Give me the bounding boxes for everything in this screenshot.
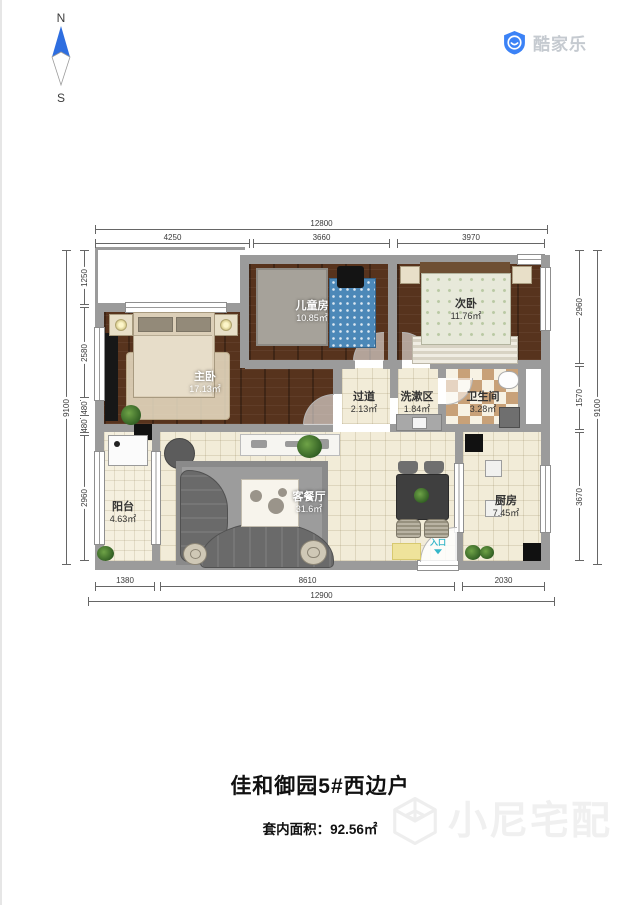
dim-top-overall: 12800 bbox=[95, 229, 548, 230]
dining-chair-4 bbox=[424, 519, 449, 538]
dim-right-overall: 9100 bbox=[597, 250, 598, 565]
window-kitchen-right bbox=[541, 466, 550, 532]
kujiale-shield-icon bbox=[502, 30, 527, 55]
wall-kids-second bbox=[388, 255, 397, 368]
dim-right-seg-3: 3670 bbox=[579, 432, 580, 561]
kids-chair bbox=[337, 266, 364, 288]
side-table-right bbox=[300, 540, 327, 565]
dining-chair-2 bbox=[424, 461, 444, 474]
second-headboard bbox=[420, 262, 510, 273]
wall-washarea-stub bbox=[390, 368, 398, 398]
label-wash-area: 洗漱区1.84㎡ bbox=[401, 390, 434, 416]
dim-left-seg-4: 480 bbox=[84, 418, 85, 433]
dim-top-seg-1: 4250 bbox=[95, 243, 250, 244]
window-second-right bbox=[541, 268, 550, 330]
column-kitchen-bottomright bbox=[523, 543, 541, 561]
label-balcony: 阳台4.63㎡ bbox=[110, 500, 137, 526]
tv-console bbox=[240, 434, 340, 456]
wall-void-left bbox=[95, 247, 98, 305]
entry-label: 入口 bbox=[430, 538, 446, 554]
entry-threshold bbox=[418, 561, 458, 570]
dim-top-seg-3: 3970 bbox=[397, 243, 545, 244]
compass: N S bbox=[46, 12, 76, 105]
second-desk-left bbox=[400, 266, 420, 284]
dim-bottom-seg-3: 2030 bbox=[462, 586, 545, 587]
balcony-plant bbox=[97, 546, 114, 561]
label-kitchen: 厨房7.45㎡ bbox=[493, 494, 520, 520]
compass-needle-icon bbox=[50, 25, 72, 87]
wall-bath-left-1 bbox=[438, 368, 446, 378]
toilet bbox=[498, 371, 519, 389]
dim-bottom-seg-2: 8610 bbox=[160, 586, 455, 587]
dim-right-seg-1: 2960 bbox=[579, 250, 580, 364]
living-plant bbox=[297, 435, 322, 458]
kids-bed bbox=[329, 278, 376, 348]
label-kids-room: 儿童房10.85㎡ bbox=[296, 299, 329, 325]
compass-north-label: N bbox=[46, 12, 76, 25]
wall-bottom-right bbox=[458, 561, 550, 570]
wall-master-kids bbox=[240, 255, 249, 368]
master-wardrobe bbox=[105, 333, 118, 421]
balcony-sliding-door bbox=[152, 452, 160, 544]
wall-void-top bbox=[95, 247, 245, 250]
plan-title: 佳和御园5#西边户 bbox=[0, 770, 640, 800]
nightstand-right bbox=[214, 314, 238, 336]
entry-arrow-icon bbox=[434, 549, 442, 554]
shower bbox=[499, 407, 520, 428]
plan-area-text: 套内面积：92.56㎡ bbox=[0, 818, 640, 838]
dining-plant bbox=[414, 488, 429, 503]
label-master-bedroom: 主卧17.13㎡ bbox=[189, 370, 221, 396]
kitchen-plant-1 bbox=[465, 545, 481, 560]
dining-chair-3 bbox=[396, 519, 421, 538]
window-balcony-left bbox=[95, 452, 104, 544]
wall-master-bottom bbox=[95, 424, 333, 432]
compass-south-label: S bbox=[46, 92, 76, 105]
dim-top-seg-2: 3660 bbox=[253, 243, 390, 244]
dim-bottom-overall: 12900 bbox=[88, 601, 555, 602]
washing-machine bbox=[108, 435, 148, 466]
brand-logo: 酷家乐 bbox=[502, 30, 587, 55]
dim-left-overall: 9100 bbox=[66, 250, 67, 565]
label-second-bedroom: 次卧11.76㎡ bbox=[451, 297, 482, 323]
dim-right-seg-2: 1570 bbox=[579, 366, 580, 430]
second-desk-right bbox=[512, 266, 532, 284]
dim-left-seg-5: 2960 bbox=[84, 435, 85, 561]
window-master-left bbox=[95, 328, 104, 400]
void-area bbox=[95, 250, 245, 303]
entry-mat bbox=[392, 543, 421, 560]
dim-left-seg-1: 1250 bbox=[84, 250, 85, 305]
kitchen-plant-2 bbox=[480, 546, 494, 559]
label-bathroom: 卫生间3.28㎡ bbox=[467, 390, 500, 416]
dim-left-seg-3: 480 bbox=[84, 400, 85, 416]
kitchen-appliance-1 bbox=[485, 460, 502, 477]
window-master-top bbox=[126, 303, 226, 312]
brand-name: 酷家乐 bbox=[533, 30, 587, 55]
master-plant bbox=[121, 405, 141, 425]
wash-vanity bbox=[396, 414, 442, 431]
dim-left-seg-2: 2580 bbox=[84, 307, 85, 398]
dim-bottom-seg-1: 1380 bbox=[95, 586, 155, 587]
dining-chair-1 bbox=[398, 461, 418, 474]
nightstand-left bbox=[109, 314, 133, 336]
coffee-table bbox=[241, 479, 299, 527]
label-hallway: 过道2.13㎡ bbox=[351, 390, 378, 416]
side-table-left bbox=[183, 543, 207, 565]
kitchen-sliding-door bbox=[455, 464, 463, 532]
column-kitchen-topleft bbox=[465, 434, 483, 452]
shaft-area bbox=[526, 368, 541, 424]
floorplan-page: N S 酷家乐 bbox=[0, 0, 640, 905]
wall-corridor-stub bbox=[333, 368, 342, 394]
label-living-dining: 客餐厅31.6㎡ bbox=[293, 490, 326, 516]
